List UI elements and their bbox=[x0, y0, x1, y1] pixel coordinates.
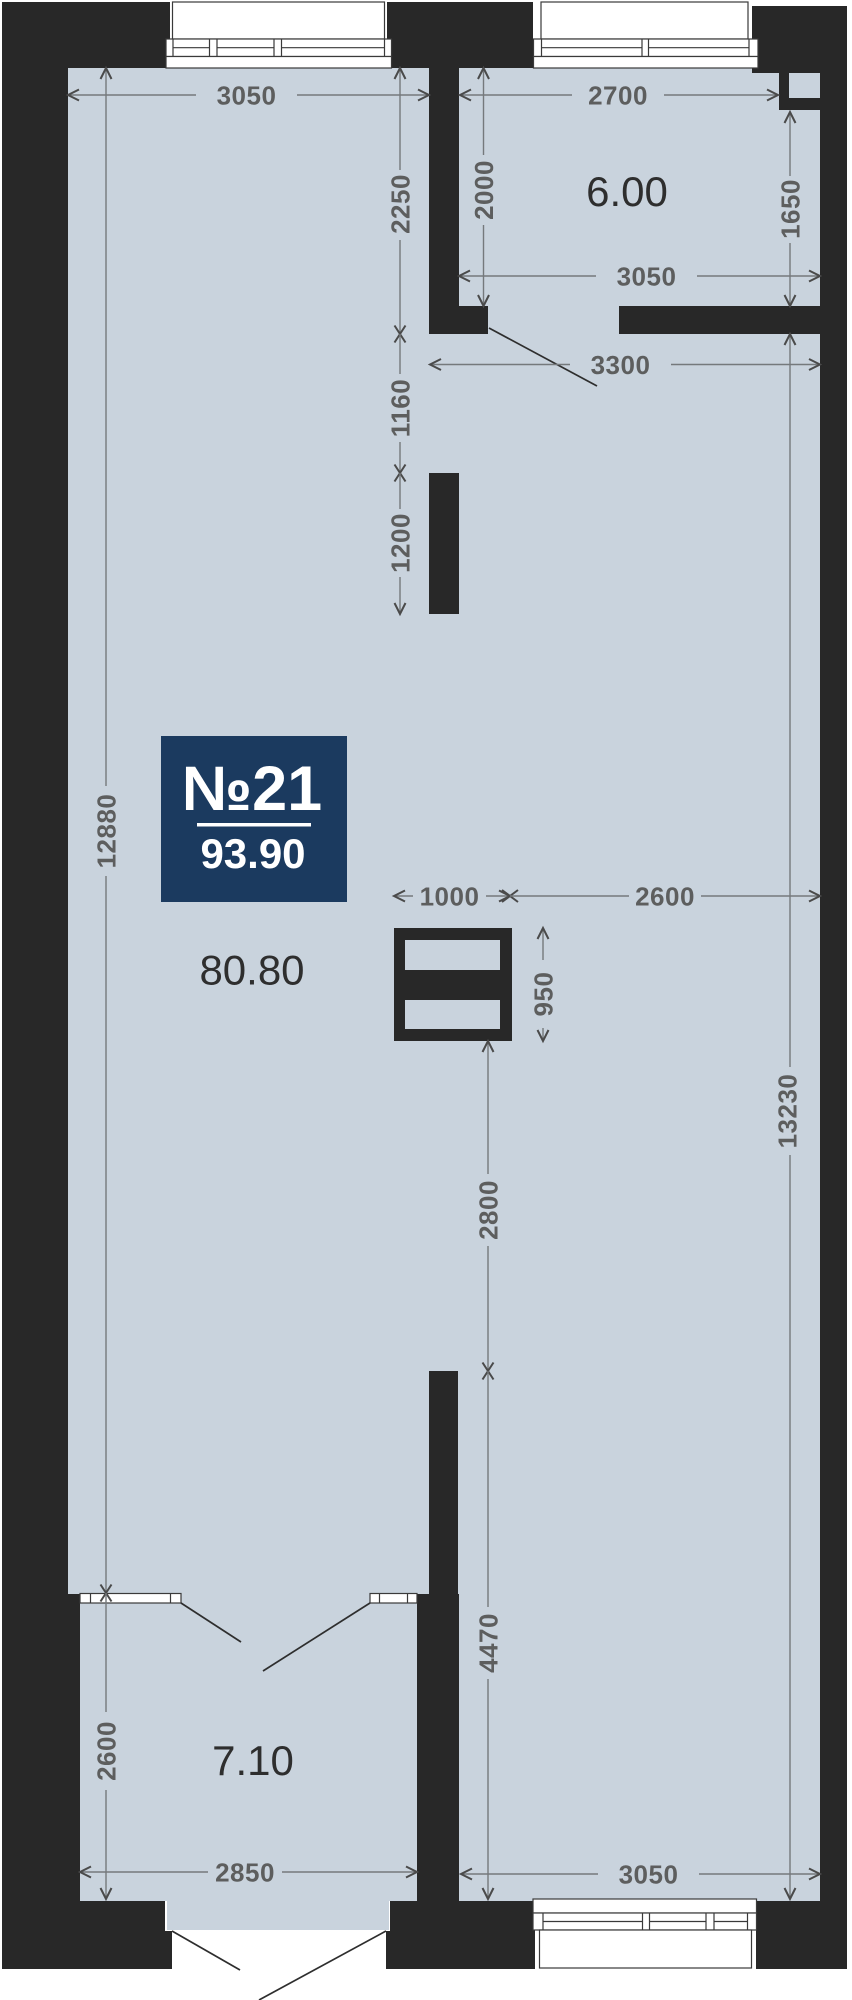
svg-text:3300: 3300 bbox=[591, 350, 651, 380]
svg-text:3050: 3050 bbox=[217, 81, 277, 111]
svg-text:2700: 2700 bbox=[588, 81, 648, 111]
svg-text:1200: 1200 bbox=[386, 513, 416, 573]
svg-text:13230: 13230 bbox=[773, 1074, 803, 1149]
svg-text:12880: 12880 bbox=[92, 794, 122, 869]
svg-text:1650: 1650 bbox=[776, 179, 806, 239]
svg-text:4470: 4470 bbox=[474, 1613, 504, 1673]
svg-text:2600: 2600 bbox=[635, 882, 695, 912]
svg-text:3050: 3050 bbox=[617, 262, 677, 292]
svg-text:93.90: 93.90 bbox=[200, 830, 305, 877]
svg-text:2600: 2600 bbox=[92, 1721, 122, 1781]
svg-text:2250: 2250 bbox=[386, 174, 416, 234]
svg-text:80.80: 80.80 bbox=[199, 947, 304, 994]
svg-text:2850: 2850 bbox=[215, 1858, 275, 1888]
svg-text:2800: 2800 bbox=[474, 1180, 504, 1240]
svg-text:6.00: 6.00 bbox=[586, 168, 668, 215]
svg-text:3050: 3050 bbox=[619, 1860, 679, 1890]
svg-text:1000: 1000 bbox=[420, 882, 480, 912]
svg-text:1160: 1160 bbox=[386, 379, 416, 437]
svg-text:№21: №21 bbox=[182, 754, 322, 824]
svg-text:2000: 2000 bbox=[469, 160, 499, 220]
svg-text:950: 950 bbox=[529, 972, 559, 1017]
svg-text:7.10: 7.10 bbox=[212, 1737, 294, 1784]
